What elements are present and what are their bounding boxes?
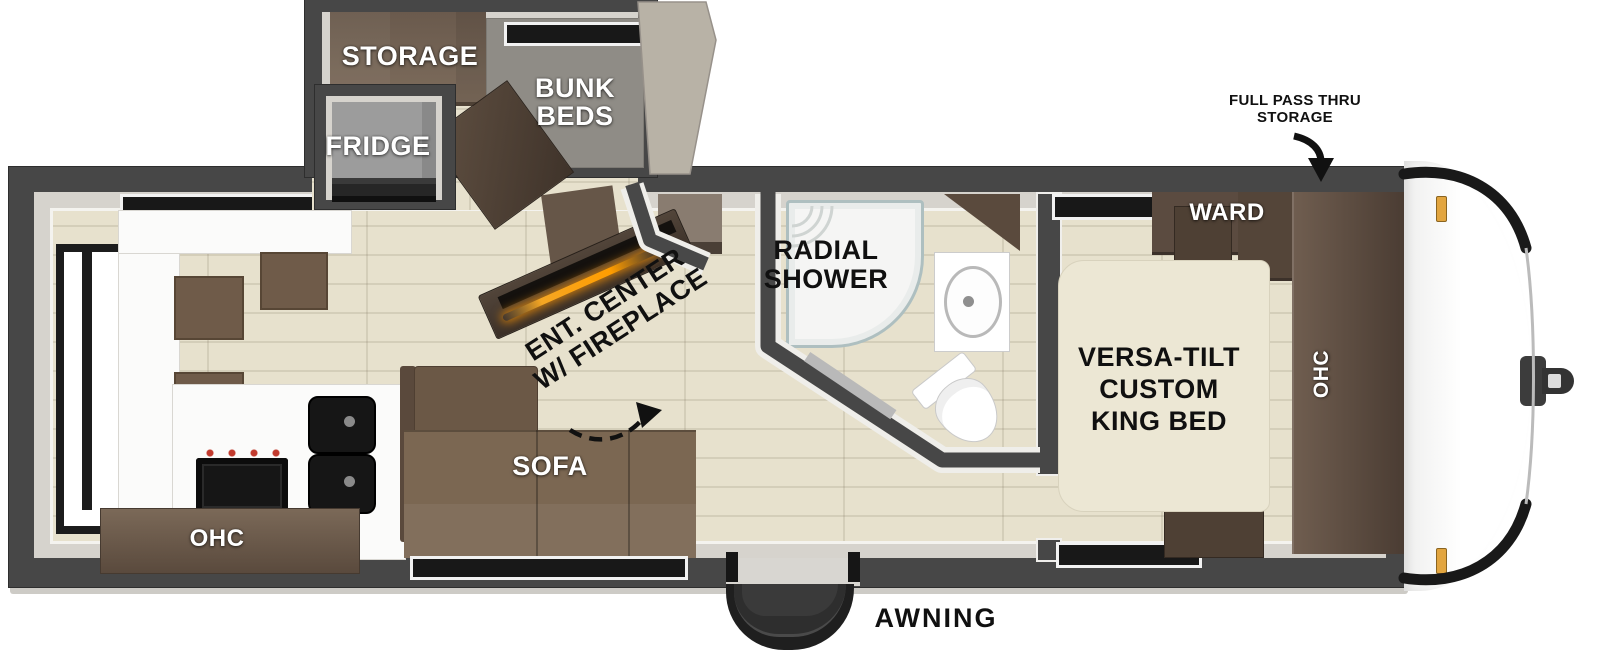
fridge-label: FRIDGE: [313, 132, 443, 160]
sink-basin: [308, 454, 376, 514]
marker-light-bottom: [1436, 548, 1447, 574]
pass-thru-label-line2: STORAGE: [1215, 109, 1375, 126]
radial-shower-label: RADIAL SHOWER: [742, 236, 910, 294]
bed-label-line3: KING BED: [1064, 406, 1254, 438]
bar-stool: [260, 252, 328, 310]
rear-window-mullion: [82, 252, 92, 510]
sofa-label: SOFA: [505, 452, 595, 480]
king-bed-label: VERSA-TILT CUSTOM KING BED: [1064, 342, 1254, 438]
stove: [196, 458, 288, 514]
sink-basin: [308, 396, 376, 454]
front-ohc-label: OHC: [1311, 314, 1333, 434]
bunk-beds-label: BUNK BEDS: [500, 74, 650, 131]
sofa-window: [410, 556, 688, 580]
door-jamb: [726, 552, 738, 582]
nightstand: [1164, 506, 1264, 558]
rv-floorplan: STORAGE BUNK BEDS FRIDGE RADIAL SHOWER E…: [0, 0, 1600, 661]
bunk-window: [504, 22, 650, 46]
counter-peninsula: [118, 210, 352, 254]
front-cap: [1404, 161, 1532, 591]
bar-stool: [174, 276, 244, 340]
bed-label-line2: CUSTOM: [1064, 374, 1254, 406]
storage-label: STORAGE: [334, 42, 486, 70]
bunk-label-line2: BEDS: [500, 102, 650, 130]
radial-label-line1: RADIAL: [742, 236, 910, 265]
radial-label-line2: SHOWER: [742, 265, 910, 294]
door-jamb: [848, 552, 860, 582]
sofa-seam: [628, 430, 630, 558]
entry-door-opening: [726, 558, 860, 586]
bunk-label-line1: BUNK: [500, 74, 650, 102]
fridge-vent: [332, 178, 436, 202]
marker-light-top: [1436, 196, 1447, 222]
pass-thru-arrow-icon: [1294, 136, 1321, 162]
counter-left: [118, 210, 180, 514]
sink-drain: [344, 416, 355, 427]
sofa-seam: [536, 430, 538, 558]
kitchen-ohc-label: OHC: [184, 526, 250, 551]
stove-knobs: [202, 449, 282, 457]
ward-label: WARD: [1186, 200, 1268, 225]
pass-thru-label: FULL PASS THRU STORAGE: [1215, 92, 1375, 127]
sofa-seats: [404, 430, 696, 558]
pass-thru-label-line1: FULL PASS THRU: [1215, 92, 1375, 109]
bed-label-line1: VERSA-TILT: [1064, 342, 1254, 374]
hitch-notch: [1548, 374, 1561, 388]
awning-label: AWNING: [866, 604, 1006, 633]
sink-drain: [344, 476, 355, 487]
vanity-faucet: [963, 296, 974, 307]
